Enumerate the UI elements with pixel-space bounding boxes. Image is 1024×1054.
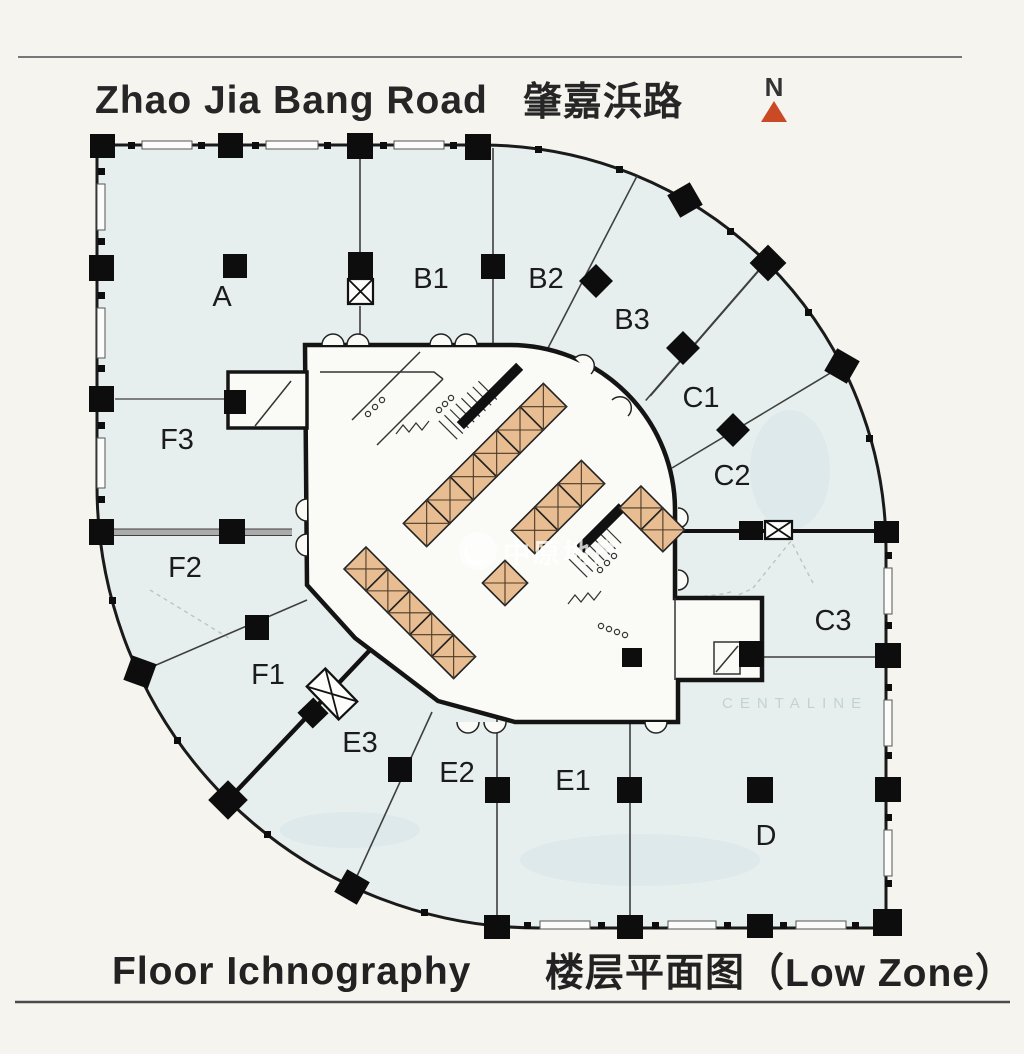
north-label: N [765,72,784,102]
zone-label-e3: E3 [342,727,377,759]
core-column [622,648,642,667]
zone-label-e1: E1 [555,765,590,797]
zone-label-b3: B3 [614,304,649,336]
road-name-en: Zhao Jia Bang Road [95,79,488,122]
zone-label-f1: F1 [251,659,285,691]
zone-label-f2: F2 [168,552,202,584]
zone-label-b2: B2 [528,263,563,295]
zone-label-e2: E2 [439,757,474,789]
zone-label-d: D [756,820,777,852]
caption-zh: 楼层平面图（Low Zone） [545,952,1015,995]
floor-plan-svg: Zhao Jia Bang Road 肇嘉浜路 N [0,0,1024,1054]
road-name-zh: 肇嘉浜路 [523,81,683,124]
faint-brand-text: CENTALINE [722,695,868,712]
zone-label-b1: B1 [413,263,448,295]
zone-label-a: A [212,281,232,313]
zone-label-c3: C3 [814,605,851,637]
watermark-text: 中原地产 [503,539,623,569]
caption-en: Floor Ichnography [112,950,471,993]
zone-label-c1: C1 [682,382,719,414]
zone-label-f3: F3 [160,424,194,456]
floor-plan-page: Zhao Jia Bang Road 肇嘉浜路 N [0,0,1024,1054]
zone-label-c2: C2 [713,460,750,492]
